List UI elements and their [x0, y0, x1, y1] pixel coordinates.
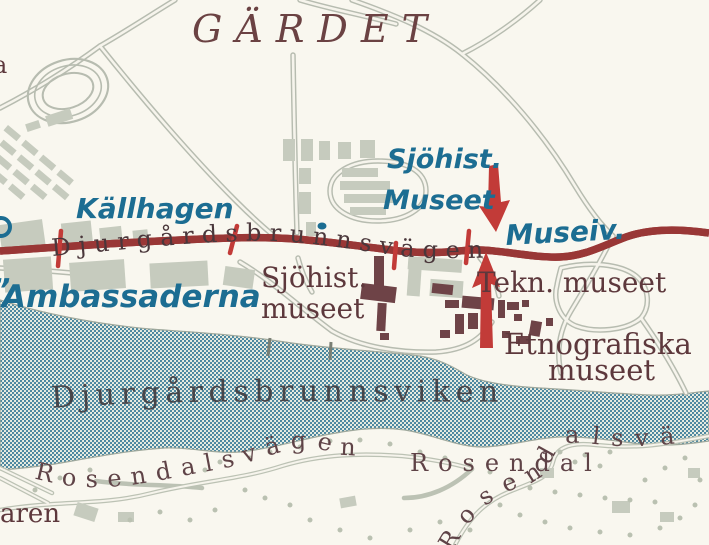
stop-label-sjohist-line1: Sjöhist.	[387, 144, 502, 175]
museum-label-sjohist-line1: Sjöhist.	[261, 261, 367, 294]
stop-label-museivagen: Museiv.	[505, 213, 626, 252]
museum-label-etnografiska-line2: museet	[548, 353, 655, 387]
poi-label-ambassaderna: Ambassaderna	[0, 279, 261, 315]
poi-label-kallhagen: Källhagen	[76, 192, 234, 225]
edge-fragment-bottom-left: aren	[0, 499, 60, 529]
map-canvas: GÄRDET a Källhagen Djurgårdsbrunnsvägen …	[0, 0, 709, 545]
museum-label-tekniska: Tekn. museet	[477, 266, 667, 299]
museum-label-sjohist-line2: museet	[261, 292, 365, 325]
stop-label-sjohist-line2: Museet	[383, 185, 496, 216]
district-label-gardet: GÄRDET	[192, 7, 440, 51]
edge-fragment-top-left: a	[0, 51, 7, 79]
